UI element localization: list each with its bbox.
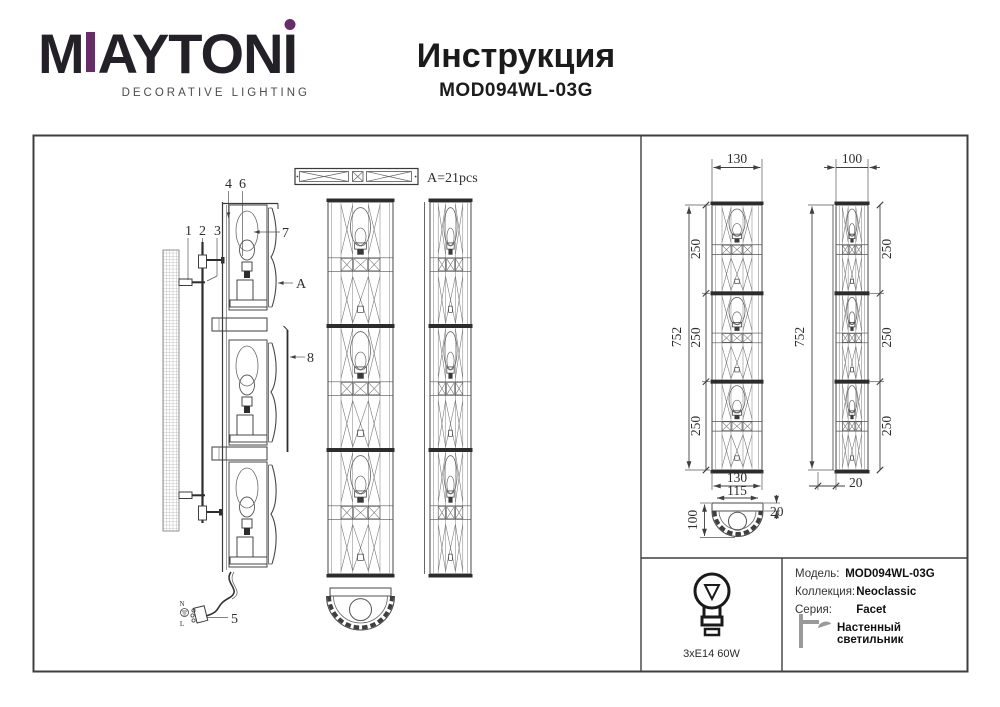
crystal-module-drawing [836, 205, 868, 293]
connector-plate-1 [212, 318, 267, 331]
dim-segments-250-b: 250 250 250 [870, 202, 894, 473]
crystal-module-drawing [430, 450, 471, 574]
crystal-module-drawing [430, 202, 471, 326]
crystal-module-drawing [328, 450, 393, 574]
svg-text:115: 115 [727, 483, 747, 498]
field-model-value: MOD094WL-03G [845, 568, 934, 580]
part-label-4: 4 [225, 177, 232, 192]
crystal-strip-piece [295, 169, 418, 185]
crystal-module-drawing [836, 293, 868, 381]
dim-plate-20: 20 [764, 495, 784, 519]
crystal-module-drawing [328, 202, 393, 326]
part-label-1: 1 [185, 224, 192, 239]
dim-height-752-b: 752 [792, 205, 834, 470]
top-view-center [327, 588, 395, 630]
exploded-lamp-module [229, 462, 276, 567]
part-label-A: A [296, 277, 307, 292]
part-label-5: 5 [231, 612, 238, 627]
dimensioned-view-100 [835, 202, 870, 474]
exploded-mounting-view: 1 2 3 4 6 [163, 177, 314, 628]
bulb-icon [686, 570, 738, 644]
anchor-screw-bottom [179, 492, 205, 499]
fixture-type-row: Настенный светильник [789, 618, 967, 658]
product-info-cell: Модель: MOD094WL-03G Коллекция: Neoclass… [789, 560, 967, 670]
wire-label-n: N [179, 600, 184, 608]
anchor-screw-top [179, 279, 205, 286]
svg-text:250: 250 [688, 239, 703, 260]
part-label-7: 7 [282, 226, 289, 241]
svg-text:752: 752 [669, 327, 684, 347]
wire-label-l: L [180, 620, 184, 628]
svg-text:250: 250 [879, 327, 894, 348]
crystal-module-drawing [712, 293, 762, 381]
field-collection: Коллекция: Neoclassic [795, 586, 916, 598]
part-label-8: 8 [307, 351, 314, 366]
power-cord [206, 572, 237, 616]
dim-segments-250-a: 250 250 250 [688, 202, 710, 473]
dim-width-130-top: 130 [712, 151, 762, 202]
part-label-6: 6 [239, 177, 246, 192]
crystal-count-label: A=21pcs [427, 171, 478, 186]
crystal-module-drawing [430, 326, 471, 450]
earth-ground-icon [181, 609, 189, 617]
wire-terminal: N L [179, 600, 207, 628]
connector-plate-2 [212, 447, 267, 460]
exploded-lamp-modules [229, 205, 276, 567]
dim-width-100-top: 100 [824, 151, 880, 202]
field-collection-label: Коллекция: [795, 586, 853, 598]
exploded-lamp-module [229, 205, 276, 310]
field-collection-value: Neoclassic [856, 586, 916, 598]
front-elevation-view [327, 199, 395, 578]
crystal-module-drawing [328, 326, 393, 450]
side-elevation-view [429, 199, 473, 578]
part-label-3: 3 [214, 224, 221, 239]
instruction-sheet: M AYTON I DECORATIVE LIGHTING Инструкция… [0, 0, 1000, 707]
svg-text:100: 100 [842, 151, 863, 166]
field-series-value: Facet [856, 604, 886, 616]
svg-text:752: 752 [792, 327, 807, 347]
svg-text:250: 250 [879, 239, 894, 260]
svg-text:130: 130 [727, 151, 748, 166]
dim-depth-20-b: 20 [809, 472, 863, 490]
crystal-module-drawing [712, 382, 762, 470]
crystal-module-drawing [836, 382, 868, 470]
dim-width-115: 115 [717, 483, 758, 498]
svg-text:100: 100 [685, 510, 700, 531]
exploded-lamp-module [229, 340, 276, 445]
field-model: Модель: MOD094WL-03G [795, 568, 935, 580]
svg-text:20: 20 [849, 475, 863, 490]
part-label-2: 2 [199, 224, 206, 239]
crystal-module-drawing [712, 205, 762, 293]
field-model-label: Модель: [795, 568, 842, 580]
lamp-spec: 3xE14 60W [683, 648, 740, 660]
svg-text:250: 250 [688, 416, 703, 437]
svg-text:250: 250 [879, 416, 894, 437]
dimensioned-view-130 [711, 202, 764, 474]
wall-lamp-icon [797, 610, 833, 650]
svg-text:250: 250 [688, 327, 703, 348]
svg-text:20: 20 [770, 504, 784, 519]
fixture-type-label: Настенный светильник [837, 622, 967, 646]
wall-section [163, 250, 179, 531]
top-view-dimensioned [712, 503, 763, 537]
bulb-spec-cell: 3xE14 60W [642, 559, 781, 671]
